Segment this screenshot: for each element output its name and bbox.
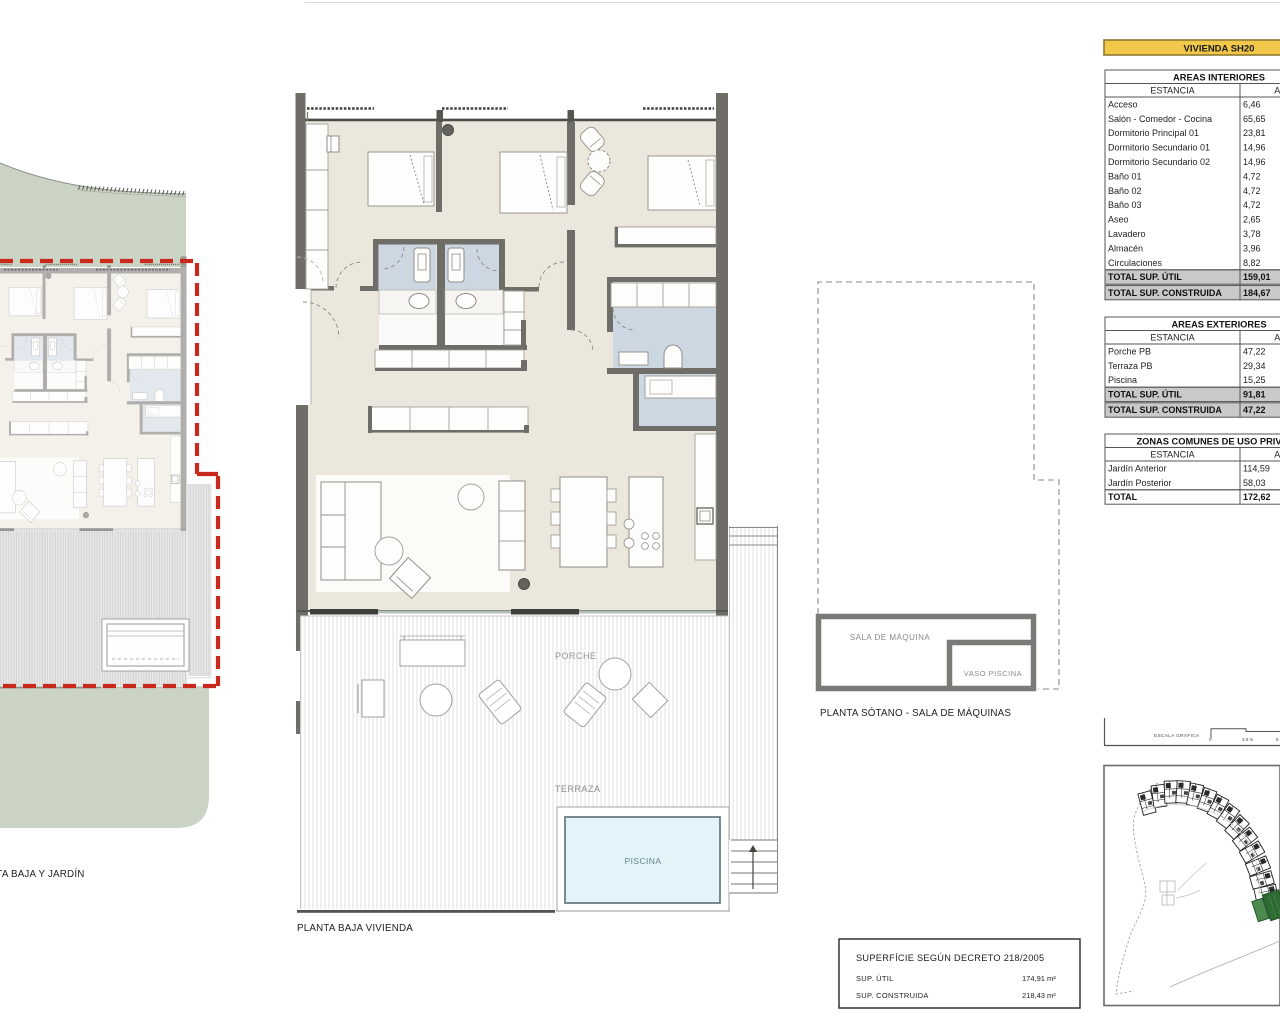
svg-text:TOTAL SUP. ÚTIL: TOTAL SUP. ÚTIL <box>1108 271 1182 282</box>
svg-text:TOTAL SUP. CONSTRUIDA: TOTAL SUP. CONSTRUIDA <box>1108 405 1222 415</box>
svg-text:172,62: 172,62 <box>1243 492 1271 502</box>
svg-text:Lavadero: Lavadero <box>1108 229 1146 239</box>
svg-text:8,82: 8,82 <box>1243 258 1261 268</box>
svg-text:PLANTA BAJA VIVIENDA: PLANTA BAJA VIVIENDA <box>297 923 413 934</box>
svg-text:TOTAL SUP. CONSTRUIDA: TOTAL SUP. CONSTRUIDA <box>1108 288 1222 298</box>
svg-text:65,65: 65,65 <box>1243 114 1266 124</box>
svg-text:Baño 03: Baño 03 <box>1108 200 1142 210</box>
svg-text:Porche PB: Porche PB <box>1108 346 1151 356</box>
svg-text:3,96: 3,96 <box>1243 243 1261 253</box>
svg-text:29,34: 29,34 <box>1243 361 1266 371</box>
svg-text:Circulaciones: Circulaciones <box>1108 258 1163 268</box>
svg-text:TOTAL SUP. ÚTIL: TOTAL SUP. ÚTIL <box>1108 389 1182 400</box>
svg-text:14,96: 14,96 <box>1243 143 1266 153</box>
svg-text:ESCALA GRÁFICA: ESCALA GRÁFICA <box>1154 732 1200 739</box>
svg-text:58,03: 58,03 <box>1243 478 1266 488</box>
svg-text:ESTANCIA: ESTANCIA <box>1150 333 1194 343</box>
svg-text:0: 0 <box>1209 737 1212 742</box>
svg-text:AREA: AREA <box>1274 333 1280 343</box>
svg-text:3.0 m: 3.0 m <box>1242 737 1254 742</box>
svg-text:Salón - Comedor - Cocina: Salón - Comedor - Cocina <box>1108 114 1212 124</box>
svg-text:4,72: 4,72 <box>1243 200 1261 210</box>
svg-text:SUPERFÍCIE SEGÚN DECRETO 218/2: SUPERFÍCIE SEGÚN DECRETO 218/2005 <box>856 953 1044 963</box>
svg-text:SALA DE MÁQUINA: SALA DE MÁQUINA <box>850 633 931 642</box>
svg-text:Dormitorio Secundario 01: Dormitorio Secundario 01 <box>1108 143 1210 153</box>
svg-text:AREA: AREA <box>1274 450 1280 460</box>
svg-text:47,22: 47,22 <box>1243 346 1266 356</box>
svg-text:PISCINA: PISCINA <box>625 856 662 866</box>
svg-text:218,43 m²: 218,43 m² <box>1022 991 1056 1000</box>
svg-text:6,46: 6,46 <box>1243 99 1261 109</box>
svg-text:Jardín Anterior: Jardín Anterior <box>1108 463 1167 473</box>
svg-text:3,78: 3,78 <box>1243 229 1261 239</box>
svg-text:Jardín Posterior: Jardín Posterior <box>1108 478 1172 488</box>
svg-text:Dormitorio Secundario 02: Dormitorio Secundario 02 <box>1108 157 1210 167</box>
svg-text:ESTANCIA: ESTANCIA <box>1150 86 1194 96</box>
svg-text:14,96: 14,96 <box>1243 157 1266 167</box>
svg-text:Baño 01: Baño 01 <box>1108 171 1142 181</box>
svg-text:Acceso: Acceso <box>1108 99 1138 109</box>
svg-text:4,72: 4,72 <box>1243 186 1261 196</box>
svg-text:159,01: 159,01 <box>1243 272 1271 282</box>
svg-text:Piscina: Piscina <box>1108 375 1137 385</box>
svg-text:91,81: 91,81 <box>1243 390 1266 400</box>
svg-text:15,25: 15,25 <box>1243 375 1266 385</box>
svg-text:114,59: 114,59 <box>1243 463 1270 473</box>
svg-text:PORCHE: PORCHE <box>555 651 597 661</box>
svg-text:AREAS EXTERIORES: AREAS EXTERIORES <box>1171 319 1266 329</box>
svg-text:23,81: 23,81 <box>1243 128 1266 138</box>
svg-text:TERRAZA: TERRAZA <box>555 784 601 794</box>
svg-text:VIVIENDA SH20: VIVIENDA SH20 <box>1184 44 1255 55</box>
svg-text:PLANTA SÓTANO - SALA DE MÁQUIN: PLANTA SÓTANO - SALA DE MÁQUINAS <box>820 708 1011 719</box>
svg-text:4,72: 4,72 <box>1243 171 1261 181</box>
svg-text:Aseo: Aseo <box>1108 215 1129 225</box>
svg-text:47,22: 47,22 <box>1243 405 1266 415</box>
svg-text:AREA: AREA <box>1274 86 1280 96</box>
svg-text:SUP. CONSTRUIDA: SUP. CONSTRUIDA <box>856 991 929 1000</box>
svg-text:184,67: 184,67 <box>1243 288 1271 298</box>
svg-text:VASO PISCINA: VASO PISCINA <box>964 669 1022 678</box>
svg-text:AREAS INTERIORES: AREAS INTERIORES <box>1173 72 1265 82</box>
svg-text:ZONAS COMUNES DE USO PRIVADO: ZONAS COMUNES DE USO PRIVADO <box>1136 436 1280 446</box>
svg-text:PLANTA BAJA Y JARDÍN: PLANTA BAJA Y JARDÍN <box>0 869 85 880</box>
svg-text:Almacén: Almacén <box>1108 243 1143 253</box>
svg-text:Dormitorio Principal 01: Dormitorio Principal 01 <box>1108 128 1199 138</box>
svg-text:2,65: 2,65 <box>1243 215 1261 225</box>
svg-text:SUP. ÚTIL: SUP. ÚTIL <box>856 974 894 983</box>
svg-text:Terraza PB: Terraza PB <box>1108 361 1153 371</box>
svg-text:174,91 m²: 174,91 m² <box>1022 974 1056 983</box>
svg-text:TOTAL: TOTAL <box>1108 492 1138 502</box>
svg-text:Baño 02: Baño 02 <box>1108 186 1142 196</box>
svg-text:8: 8 <box>1276 737 1279 742</box>
svg-text:ESTANCIA: ESTANCIA <box>1150 450 1194 460</box>
